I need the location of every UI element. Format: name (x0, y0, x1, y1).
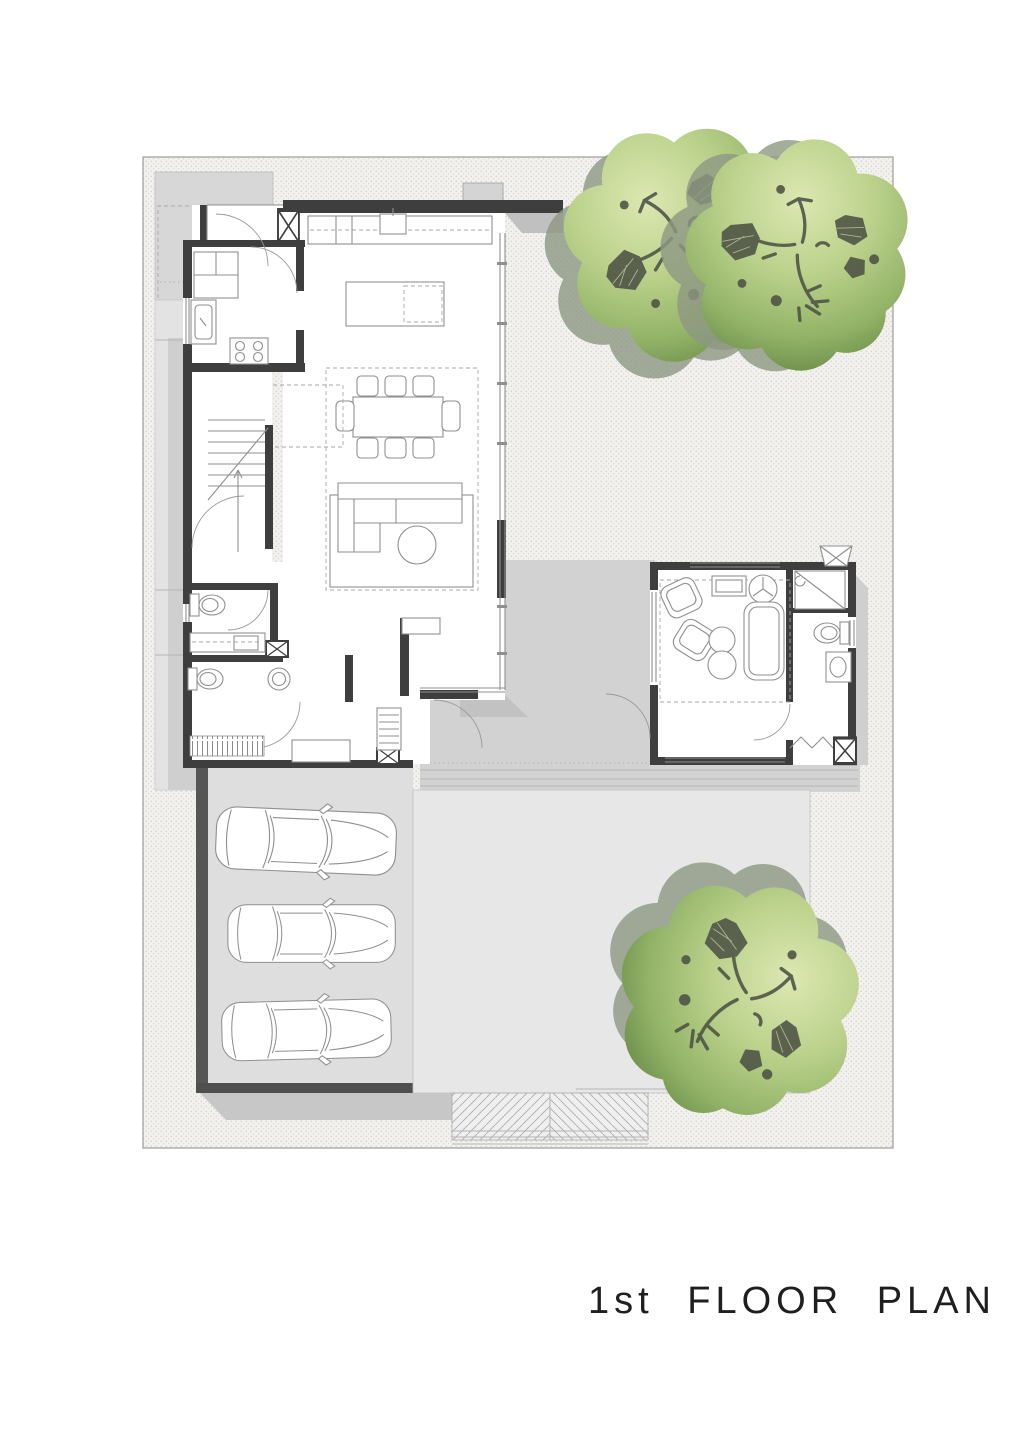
column (278, 210, 299, 242)
stove (230, 338, 268, 364)
coffee-table (398, 526, 436, 564)
column (266, 641, 288, 657)
drawing-title: 1st FLOOR PLAN (588, 1280, 988, 1323)
side-table (712, 576, 746, 596)
site-plan-drawing (0, 0, 1024, 1448)
console (402, 618, 440, 634)
kitchen-island (346, 282, 444, 326)
pouf (709, 627, 735, 653)
shoe-rack (190, 736, 264, 756)
pouf (708, 651, 736, 679)
daybed (744, 602, 784, 680)
driveway (452, 1093, 648, 1144)
water-tank (820, 546, 852, 566)
car (228, 898, 395, 969)
column (834, 738, 856, 764)
parked-cars (214, 799, 397, 1068)
pavilion-shadow (856, 575, 868, 765)
pedestal-sink (268, 668, 290, 690)
bench (292, 740, 350, 762)
floor-plan-page: 1st FLOOR PLAN (0, 0, 1024, 1448)
car (221, 992, 392, 1068)
